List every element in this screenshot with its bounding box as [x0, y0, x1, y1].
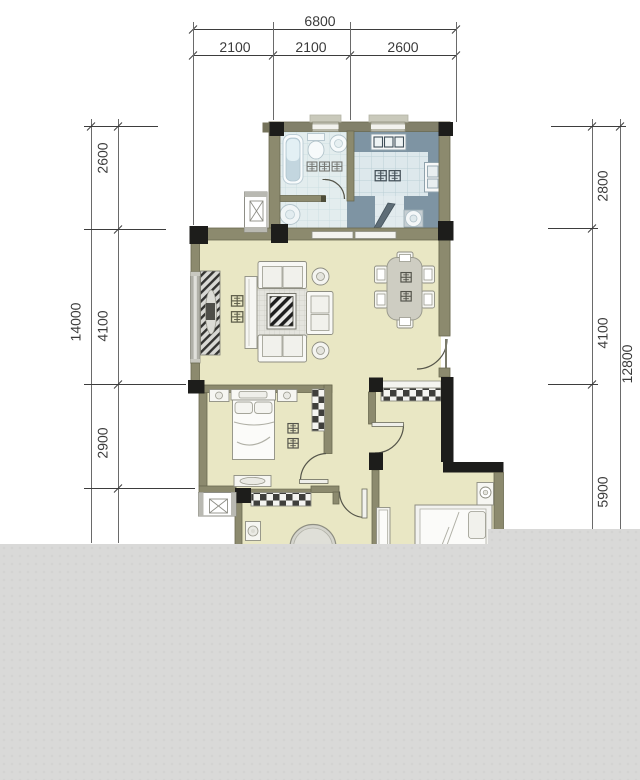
- svg-text:6800: 6800: [304, 13, 335, 29]
- svg-text:5900: 5900: [595, 476, 611, 507]
- svg-text:2100: 2100: [295, 39, 326, 55]
- svg-text:4100: 4100: [95, 310, 111, 341]
- svg-text:2600: 2600: [387, 39, 418, 55]
- svg-text:2800: 2800: [595, 170, 611, 201]
- svg-text:2100: 2100: [219, 39, 250, 55]
- svg-text:2900: 2900: [95, 427, 111, 458]
- svg-text:2600: 2600: [95, 142, 111, 173]
- svg-text:14000: 14000: [68, 302, 84, 341]
- svg-text:12800: 12800: [619, 344, 635, 383]
- svg-text:4100: 4100: [595, 317, 611, 348]
